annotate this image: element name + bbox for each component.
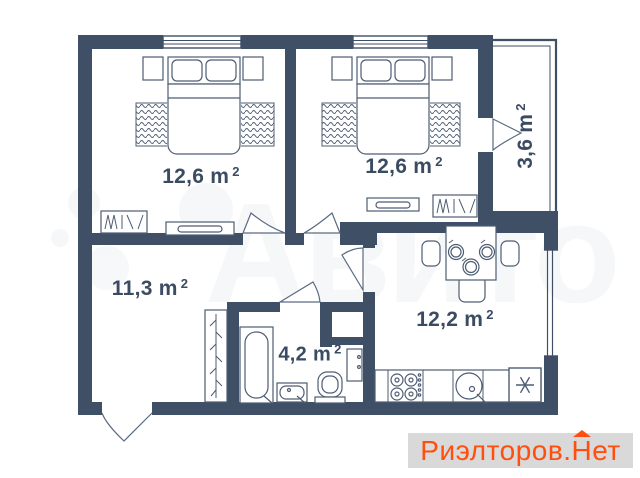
wall-balcony-bottom	[488, 211, 558, 233]
area-sup: 2	[232, 164, 240, 179]
bathroom-cabinet	[347, 349, 362, 381]
wall-top	[241, 35, 353, 49]
room-label-bedroom-1: 12,6m2	[162, 165, 240, 189]
wall-kitchen-right	[544, 233, 558, 250]
area-unit: m	[413, 155, 432, 178]
wall-right-bedroom	[478, 49, 493, 118]
bedroom2-dresser	[367, 198, 419, 211]
nightstand	[332, 57, 352, 80]
nightstand	[243, 57, 263, 80]
nightstand	[143, 57, 163, 80]
door-entrance	[102, 413, 152, 441]
wall-top	[428, 35, 493, 49]
area-sup: 2	[334, 342, 342, 357]
house-roof-icon	[573, 430, 591, 437]
wall-bathroom-left	[227, 302, 239, 402]
bedroom2-clothes-rack	[433, 195, 477, 217]
area-sup: 2	[486, 307, 494, 322]
watermark-letter-n: Н	[572, 435, 593, 467]
bedroom1-clothes-rack	[101, 211, 147, 233]
room-label-bathroom: 4,2m2	[278, 344, 341, 367]
wall-bathroom-top	[320, 302, 363, 312]
wall-kitchen-left	[363, 292, 375, 402]
watermark-bar: Риэлторов.Нет	[408, 433, 633, 468]
wall-hallway-top	[296, 233, 304, 245]
area-value: 12,6	[162, 165, 204, 188]
bedroom1-dresser	[166, 222, 234, 235]
bedroom1-bed	[167, 56, 241, 155]
area-value: 11,3	[112, 277, 153, 300]
bathroom-sink	[277, 383, 307, 403]
wall-bathroom-top	[239, 302, 280, 312]
room-label-bedroom-2: 12,6m2	[365, 155, 443, 179]
wall-bottom	[78, 402, 102, 415]
toilet	[315, 372, 345, 403]
area-sup: 2	[435, 154, 443, 169]
room-label-kitchen: 12,2m2	[416, 308, 494, 332]
area-unit: m	[210, 165, 229, 188]
kitchen-counter	[375, 368, 541, 404]
watermark-text-left: Риэлторов.	[420, 435, 571, 467]
avito-logo-dot	[51, 229, 69, 247]
wall-bedroom-divider	[285, 35, 296, 245]
wall-left	[78, 35, 92, 415]
hallway-wardrobe	[205, 310, 227, 402]
area-value: 3,6	[514, 139, 537, 169]
area-sup: 2	[513, 103, 528, 111]
dining-table	[446, 226, 496, 280]
area-value: 12,2	[416, 308, 458, 331]
area-unit: m	[159, 277, 178, 300]
wall-top	[92, 35, 163, 49]
bedroom2-bed	[356, 56, 430, 155]
watermark-text-right: ет	[592, 435, 620, 467]
window-bedroom-2	[353, 36, 428, 48]
area-value: 4,2	[278, 344, 307, 366]
room-label-hallway: 11,3m2	[112, 277, 188, 301]
room-label-balcony: 3,6m2	[514, 103, 538, 169]
area-unit: m	[514, 114, 537, 133]
area-value: 12,6	[365, 155, 407, 178]
window-bedroom-1	[163, 36, 241, 48]
floor-plan-page: Авито	[0, 0, 640, 478]
wall-bottom	[152, 402, 558, 415]
floor-plan-drawing: Авито	[0, 0, 640, 478]
fridge	[509, 368, 541, 402]
area-unit: m	[313, 344, 331, 366]
area-unit: m	[464, 308, 483, 331]
bathtub	[240, 327, 273, 403]
nightstand	[432, 57, 452, 80]
area-sup: 2	[181, 276, 189, 291]
wall-kitchen-left	[363, 233, 375, 248]
